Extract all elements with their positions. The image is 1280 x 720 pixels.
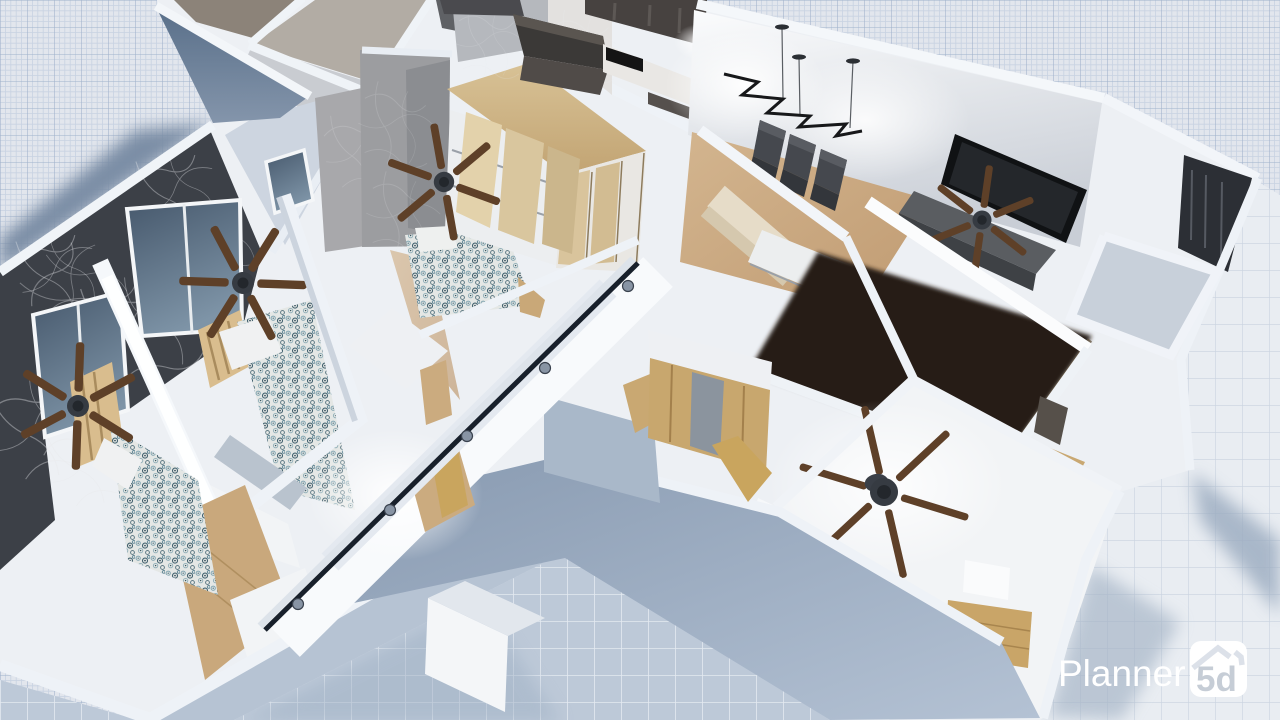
svg-text:Planner: Planner xyxy=(1058,653,1186,694)
svg-text:5d: 5d xyxy=(1196,660,1237,699)
